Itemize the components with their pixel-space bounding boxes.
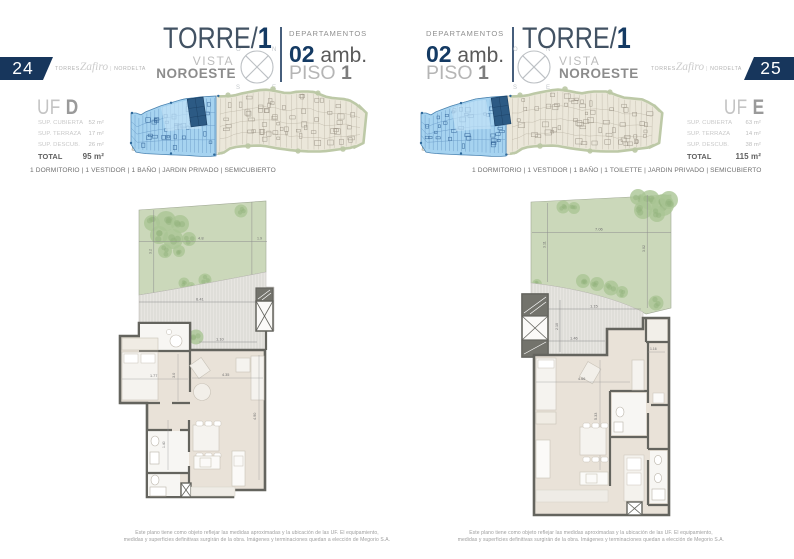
svg-text:S: S bbox=[236, 85, 240, 91]
svg-text:N: N bbox=[272, 47, 276, 53]
svg-text:4.90: 4.90 bbox=[253, 413, 257, 420]
svg-text:7.06: 7.06 bbox=[595, 227, 604, 232]
svg-text:1.9: 1.9 bbox=[257, 237, 262, 241]
svg-text:1.16: 1.16 bbox=[650, 347, 657, 351]
svg-text:4.35: 4.35 bbox=[222, 373, 229, 377]
svg-text:4.8: 4.8 bbox=[198, 236, 204, 241]
svg-text:1.15: 1.15 bbox=[590, 304, 599, 309]
svg-text:6.41: 6.41 bbox=[196, 297, 205, 302]
svg-text:3.0: 3.0 bbox=[172, 373, 176, 378]
svg-text:1.40: 1.40 bbox=[162, 441, 166, 448]
svg-text:5.33: 5.33 bbox=[594, 413, 598, 420]
svg-text:1.10: 1.10 bbox=[216, 337, 225, 342]
svg-text:2.10: 2.10 bbox=[555, 323, 559, 330]
svg-text:O: O bbox=[513, 47, 518, 53]
svg-text:1.77: 1.77 bbox=[150, 374, 157, 378]
svg-text:3.2: 3.2 bbox=[149, 249, 153, 254]
svg-text:3.11: 3.11 bbox=[543, 241, 547, 248]
svg-text:1.46: 1.46 bbox=[570, 336, 579, 341]
svg-text:S: S bbox=[513, 85, 517, 91]
svg-text:4.66: 4.66 bbox=[578, 377, 585, 381]
svg-text:3.02: 3.02 bbox=[642, 245, 646, 252]
